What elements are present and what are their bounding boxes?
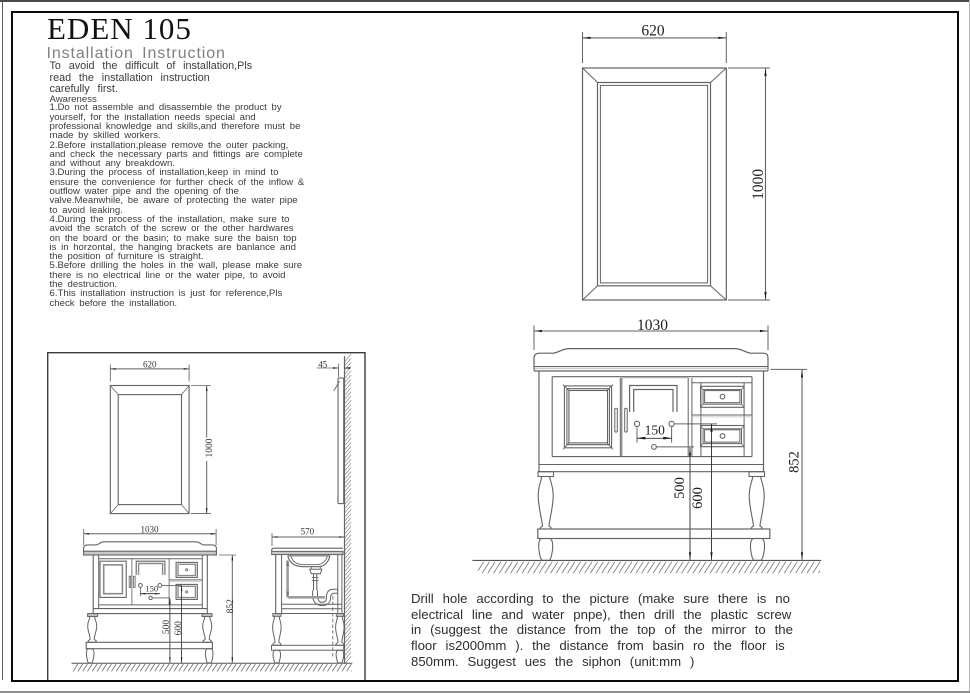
- svg-text:570: 570: [301, 526, 315, 536]
- svg-text:852: 852: [787, 451, 803, 473]
- svg-text:600: 600: [690, 487, 706, 509]
- svg-text:500: 500: [162, 620, 172, 635]
- svg-text:620: 620: [641, 23, 665, 40]
- svg-text:1030: 1030: [141, 524, 160, 534]
- svg-text:1000: 1000: [750, 169, 767, 200]
- svg-text:500: 500: [672, 477, 688, 499]
- svg-text:150: 150: [145, 583, 158, 593]
- svg-text:620: 620: [143, 359, 157, 369]
- svg-text:852: 852: [226, 599, 236, 614]
- svg-text:150: 150: [645, 423, 666, 438]
- svg-text:600: 600: [174, 621, 184, 636]
- svg-text:1000: 1000: [205, 438, 215, 457]
